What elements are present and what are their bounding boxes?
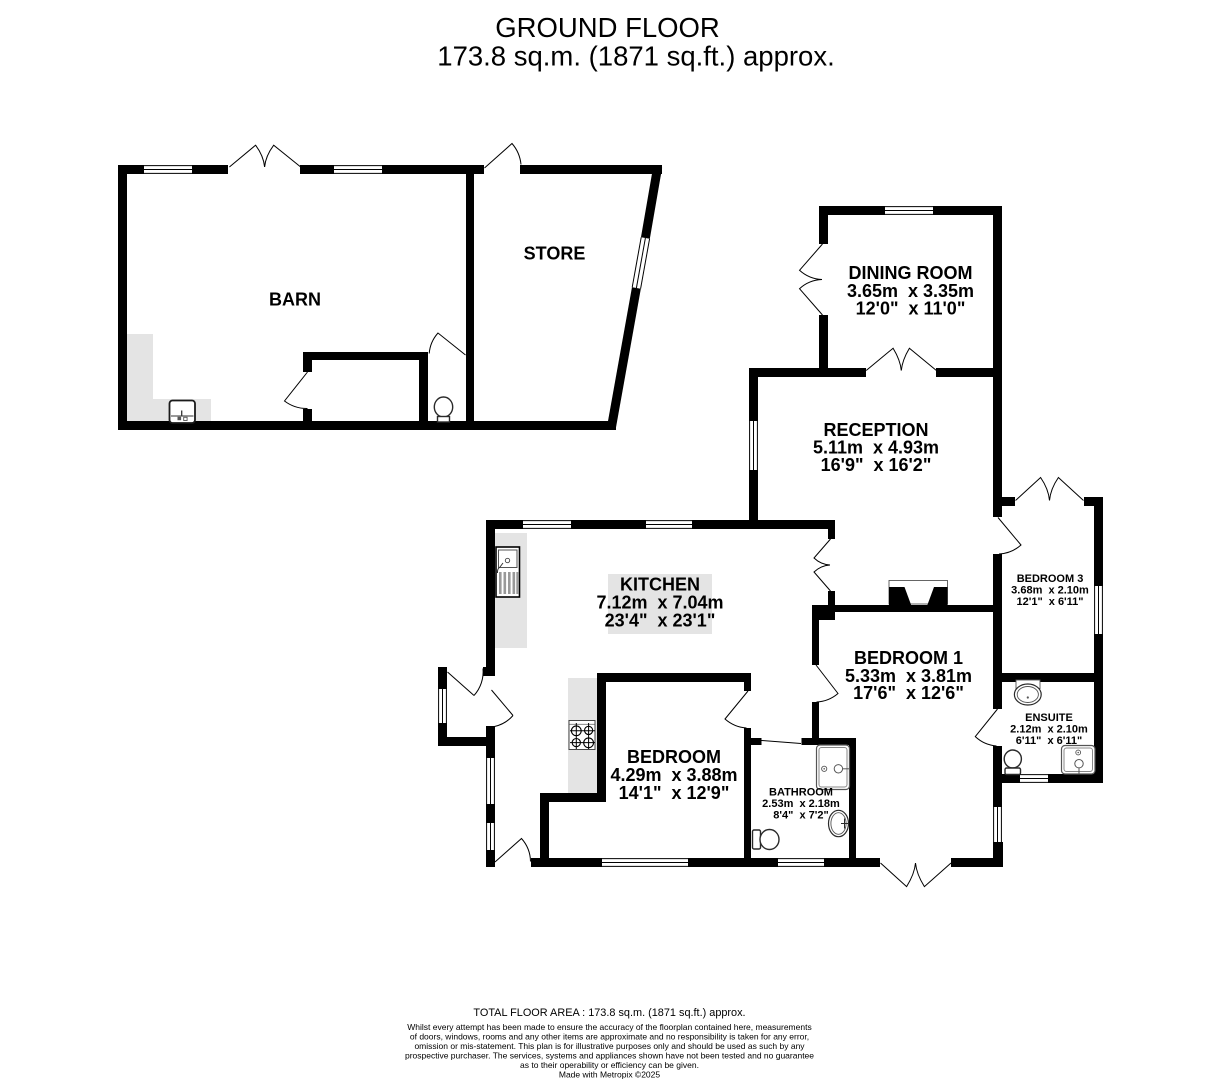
svg-text:2.53m x 2.18m: 2.53m x 2.18m: [762, 798, 840, 810]
svg-text:DINING ROOM: DINING ROOM: [849, 263, 973, 283]
svg-text:3.68m x 2.10m: 3.68m x 2.10m: [1011, 585, 1089, 597]
svg-text:16'9" x 16'2": 16'9" x 16'2": [821, 455, 932, 475]
svg-text:KITCHEN: KITCHEN: [620, 575, 700, 595]
svg-text:2.12m x 2.10m: 2.12m x 2.10m: [1010, 724, 1088, 736]
svg-text:as to their operability or eff: as to their operability or efficiency ca…: [520, 1060, 699, 1070]
svg-text:TOTAL FLOOR AREA : 173.8 sq.m.: TOTAL FLOOR AREA : 173.8 sq.m. (1871 sq.…: [473, 1007, 745, 1019]
svg-text:8'4" x 7'2": 8'4" x 7'2": [773, 810, 828, 822]
svg-text:173.8 sq.m. (1871 sq.ft.) appr: 173.8 sq.m. (1871 sq.ft.) approx.: [437, 41, 834, 72]
svg-text:17'6" x 12'6": 17'6" x 12'6": [853, 683, 964, 703]
svg-text:BARN: BARN: [269, 290, 321, 310]
svg-text:23'4" x 23'1": 23'4" x 23'1": [605, 611, 716, 631]
svg-text:BEDROOM: BEDROOM: [627, 747, 721, 767]
svg-text:of doors, windows, rooms and a: of doors, windows, rooms and any other i…: [410, 1032, 809, 1042]
svg-text:prospective purchaser. The ser: prospective purchaser. The services, sys…: [405, 1051, 814, 1061]
svg-text:4.29m x 3.88m: 4.29m x 3.88m: [610, 765, 737, 785]
svg-text:Whilst every attempt has been: Whilst every attempt has been made to en…: [407, 1022, 811, 1032]
svg-text:12'1" x 6'11": 12'1" x 6'11": [1016, 596, 1083, 608]
svg-text:BATHROOM: BATHROOM: [769, 787, 833, 799]
svg-text:6'11" x 6'11": 6'11" x 6'11": [1016, 735, 1082, 747]
svg-text:Made with Metropix ©2025: Made with Metropix ©2025: [559, 1070, 661, 1080]
svg-text:STORE: STORE: [524, 244, 586, 264]
svg-text:GROUND FLOOR: GROUND FLOOR: [495, 12, 720, 43]
svg-text:BEDROOM 3: BEDROOM 3: [1017, 573, 1084, 585]
svg-text:BEDROOM 1: BEDROOM 1: [854, 648, 963, 668]
svg-text:12'0" x 11'0": 12'0" x 11'0": [856, 299, 966, 319]
svg-text:7.12m x 7.04m: 7.12m x 7.04m: [596, 593, 723, 613]
svg-text:omission or mis-statement. Thi: omission or mis-statement. This plan is …: [414, 1041, 805, 1051]
svg-text:14'1" x 12'9": 14'1" x 12'9": [619, 783, 730, 803]
svg-text:ENSUITE: ENSUITE: [1025, 712, 1073, 724]
